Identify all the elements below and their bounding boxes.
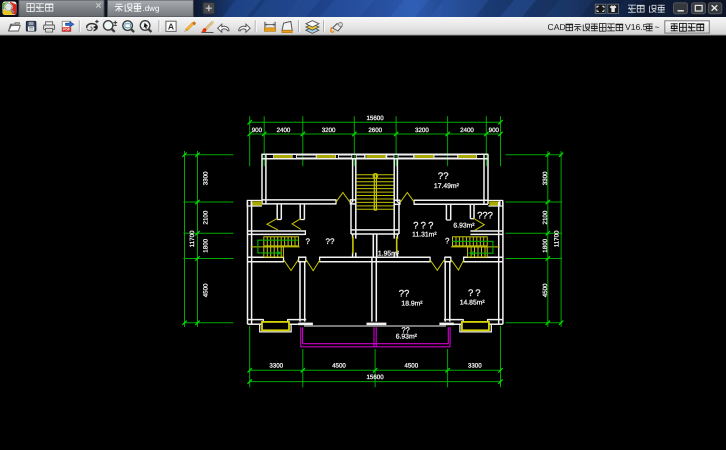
svg-text:CAD: CAD bbox=[548, 22, 566, 32]
svg-text:3300: 3300 bbox=[542, 171, 549, 185]
svg-text:3200: 3200 bbox=[415, 127, 429, 134]
svg-text:11700: 11700 bbox=[554, 230, 561, 247]
svg-text:???: ??? bbox=[413, 220, 435, 231]
svg-text:??: ?? bbox=[399, 288, 410, 299]
svg-text:.dwg: .dwg bbox=[143, 4, 160, 13]
svg-text:1800: 1800 bbox=[542, 238, 549, 252]
svg-text:PDF: PDF bbox=[63, 28, 70, 32]
svg-text:4500: 4500 bbox=[404, 362, 418, 369]
svg-text:??: ?? bbox=[468, 288, 483, 299]
svg-text:1800: 1800 bbox=[203, 238, 210, 252]
svg-text:18.9m²: 18.9m² bbox=[401, 301, 423, 308]
svg-text:~: ~ bbox=[655, 22, 660, 32]
svg-text:3300: 3300 bbox=[269, 362, 283, 369]
svg-text:900: 900 bbox=[252, 127, 263, 134]
svg-text:4500: 4500 bbox=[203, 283, 210, 297]
svg-text:3300: 3300 bbox=[468, 362, 482, 369]
svg-text:1.95m²: 1.95m² bbox=[378, 251, 400, 258]
svg-text:6.93m²: 6.93m² bbox=[396, 333, 418, 340]
svg-text:14.85m²: 14.85m² bbox=[460, 300, 486, 307]
svg-text:V16.5: V16.5 bbox=[625, 22, 648, 32]
svg-text:900: 900 bbox=[489, 127, 500, 134]
svg-text:2100: 2100 bbox=[542, 210, 549, 224]
svg-text:??: ?? bbox=[438, 171, 449, 182]
svg-text:11.31m²: 11.31m² bbox=[412, 231, 437, 238]
svg-text:3200: 3200 bbox=[322, 127, 336, 134]
svg-text:?: ? bbox=[305, 237, 310, 246]
svg-text:4500: 4500 bbox=[542, 283, 549, 297]
svg-text:2400: 2400 bbox=[460, 127, 474, 134]
svg-text:3300: 3300 bbox=[203, 171, 210, 185]
svg-text:2600: 2600 bbox=[368, 127, 382, 134]
svg-text:???: ??? bbox=[477, 211, 493, 222]
svg-text:?: ? bbox=[445, 236, 450, 245]
svg-text:6.93m²: 6.93m² bbox=[453, 222, 475, 229]
svg-text:15600: 15600 bbox=[366, 115, 384, 122]
svg-text:2400: 2400 bbox=[277, 127, 291, 134]
svg-text:4500: 4500 bbox=[332, 362, 346, 369]
svg-text:11700: 11700 bbox=[189, 230, 196, 247]
svg-text:15600: 15600 bbox=[366, 374, 384, 381]
svg-text:2100: 2100 bbox=[203, 210, 210, 224]
svg-text:??: ?? bbox=[326, 237, 335, 246]
svg-text:A: A bbox=[168, 22, 174, 32]
svg-text:17.49m²: 17.49m² bbox=[434, 183, 460, 190]
